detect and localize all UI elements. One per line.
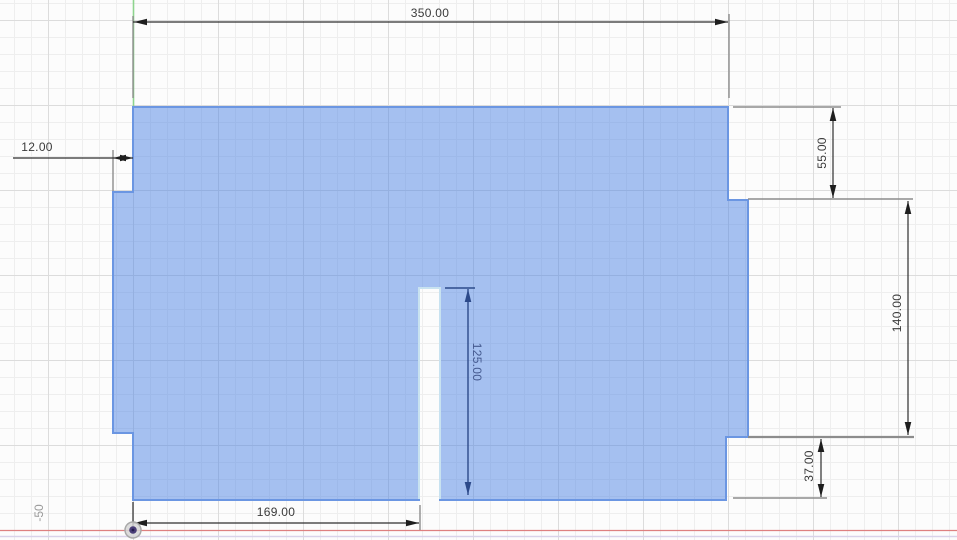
slot-edges[interactable] — [419, 288, 440, 499]
dimension-label-bottom-width[interactable]: 169.00 — [257, 506, 296, 518]
dimension-label-left-step[interactable]: 12.00 — [21, 141, 53, 153]
origin-point[interactable] — [125, 522, 141, 538]
dimension-label-right-height[interactable]: 140.00 — [891, 294, 903, 333]
dimension-label-right-upper[interactable]: 55.00 — [816, 137, 828, 169]
dimension-label-right-lower[interactable]: 37.00 — [803, 450, 815, 482]
grid-coordinate-label: -50 — [32, 504, 46, 521]
sketch-canvas[interactable]: 350.00 12.00 55.00 140.00 37.00 125.00 1… — [0, 0, 957, 540]
dimension-label-top-width[interactable]: 350.00 — [411, 7, 450, 19]
dimension-label-slot-depth[interactable]: 125.00 — [471, 343, 483, 382]
sketch-profile[interactable] — [113, 107, 748, 500]
